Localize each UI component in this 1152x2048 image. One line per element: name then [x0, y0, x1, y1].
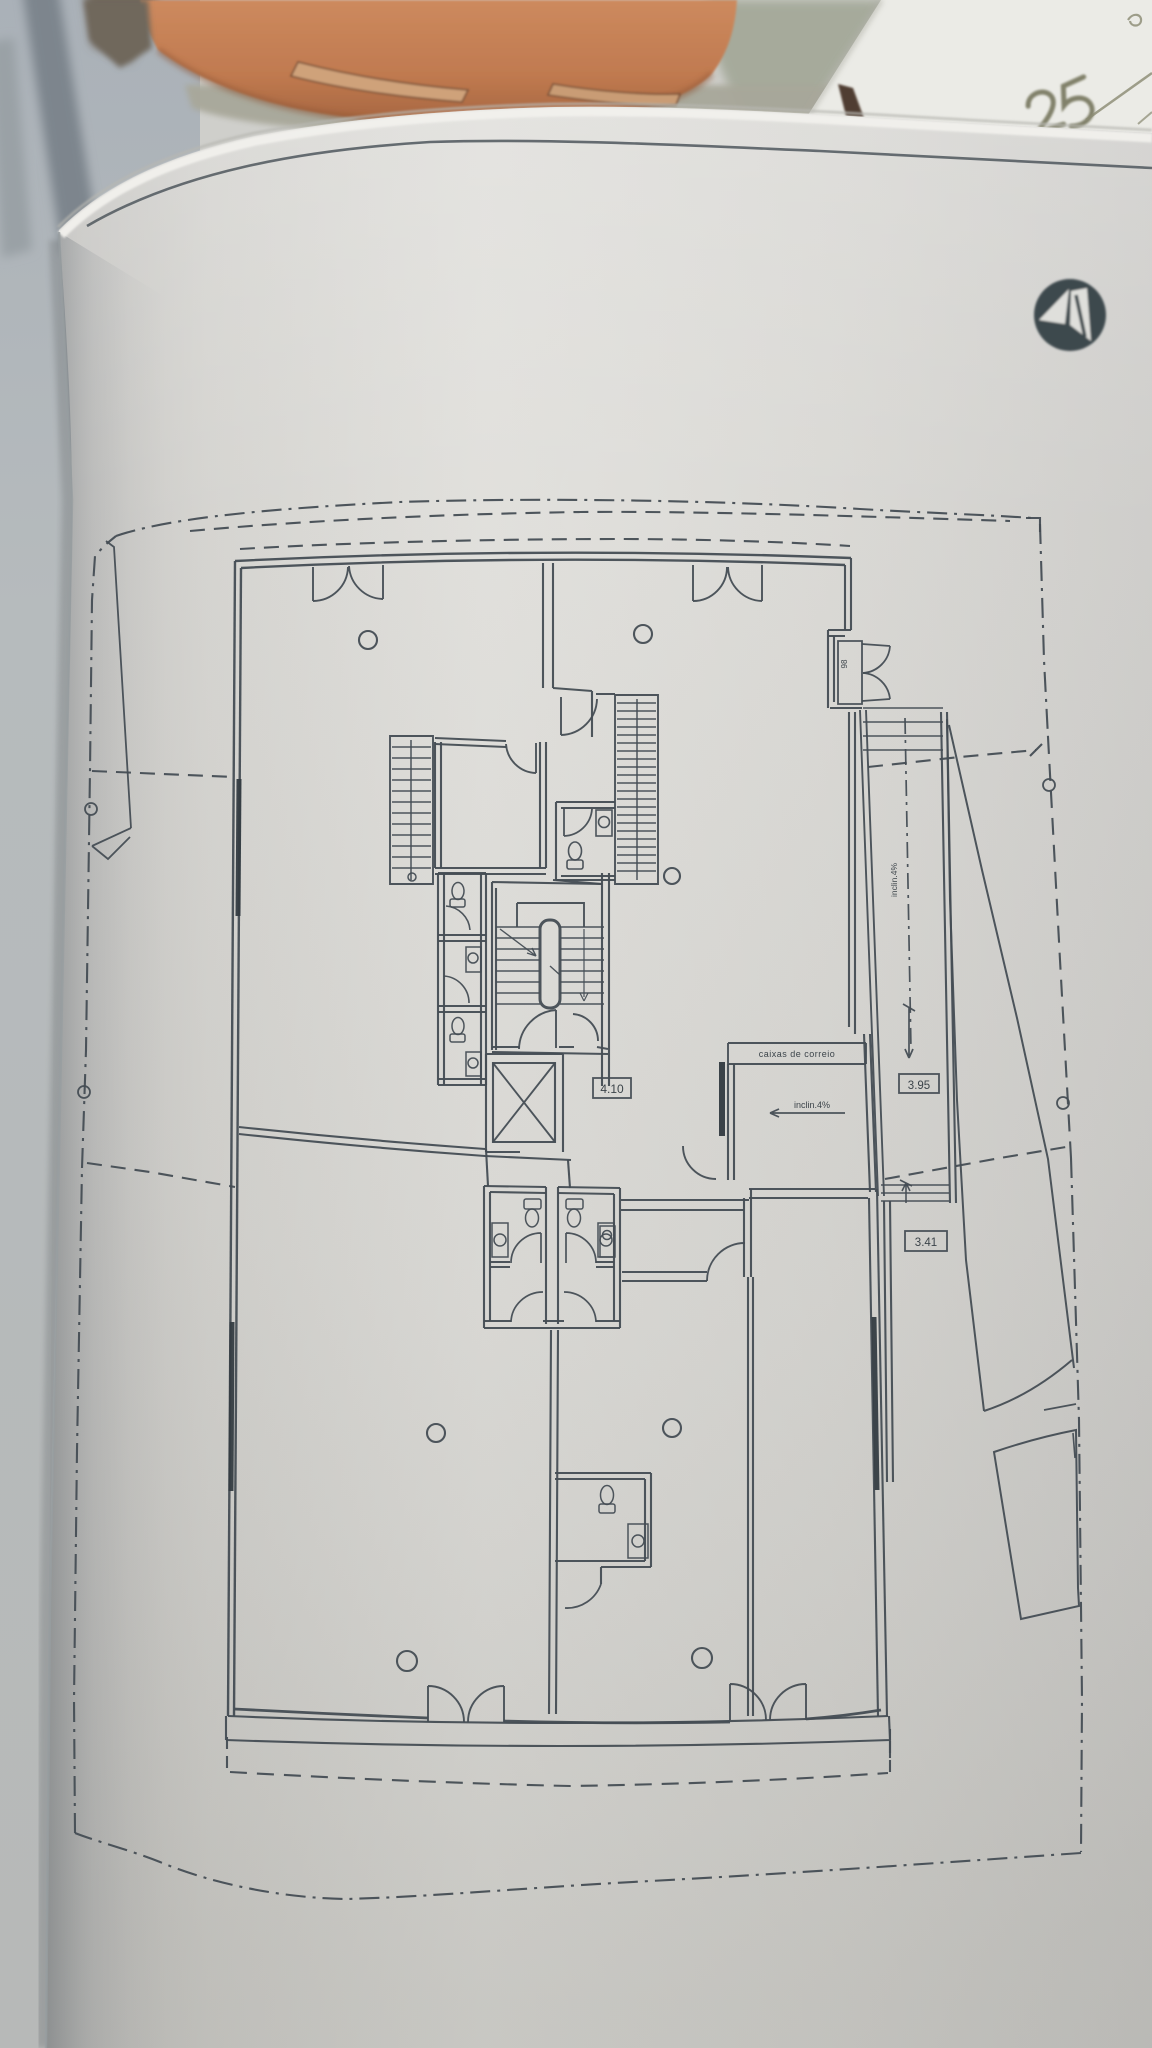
svg-text:inclin.4%: inclin.4%	[794, 1100, 830, 1110]
svg-text:98: 98	[840, 659, 849, 668]
svg-text:caixas de correio: caixas de correio	[759, 1049, 836, 1059]
svg-text:4.10: 4.10	[600, 1082, 624, 1096]
svg-text:inclin.4%: inclin.4%	[889, 863, 899, 897]
svg-text:3.41: 3.41	[915, 1237, 937, 1249]
svg-text:3.95: 3.95	[908, 1080, 930, 1092]
